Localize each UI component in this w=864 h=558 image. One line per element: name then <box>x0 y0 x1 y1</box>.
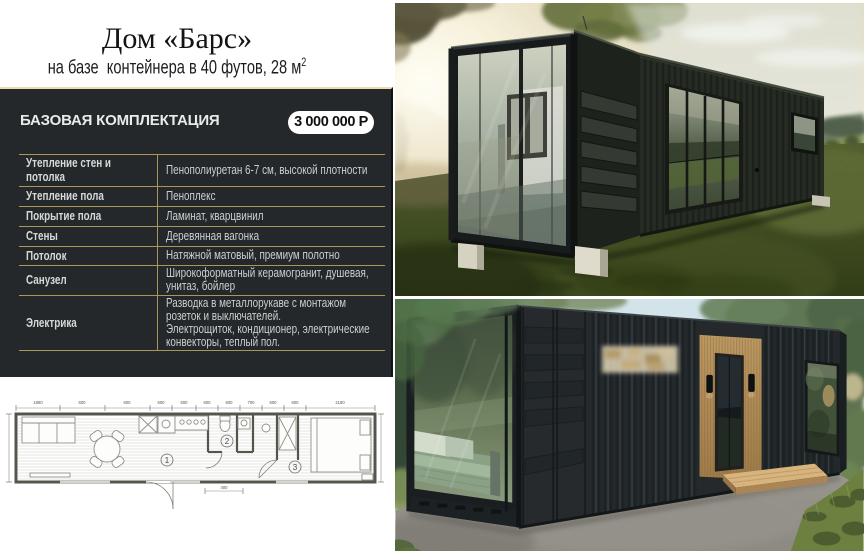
svg-text:600: 600 <box>181 400 189 405</box>
svg-text:600: 600 <box>204 400 212 405</box>
svg-text:600: 600 <box>158 400 166 405</box>
svg-text:1880: 1880 <box>33 400 43 405</box>
svg-text:600: 600 <box>124 400 132 405</box>
svg-text:2: 2 <box>225 437 230 446</box>
svg-text:600: 600 <box>79 400 87 405</box>
svg-text:3: 3 <box>293 463 298 472</box>
svg-text:2180: 2180 <box>335 400 345 405</box>
svg-text:400: 400 <box>221 485 229 490</box>
svg-text:600: 600 <box>270 400 278 405</box>
svg-text:700: 700 <box>248 400 256 405</box>
svg-text:1: 1 <box>165 456 170 465</box>
svg-text:600: 600 <box>292 400 300 405</box>
svg-text:600: 600 <box>226 400 234 405</box>
